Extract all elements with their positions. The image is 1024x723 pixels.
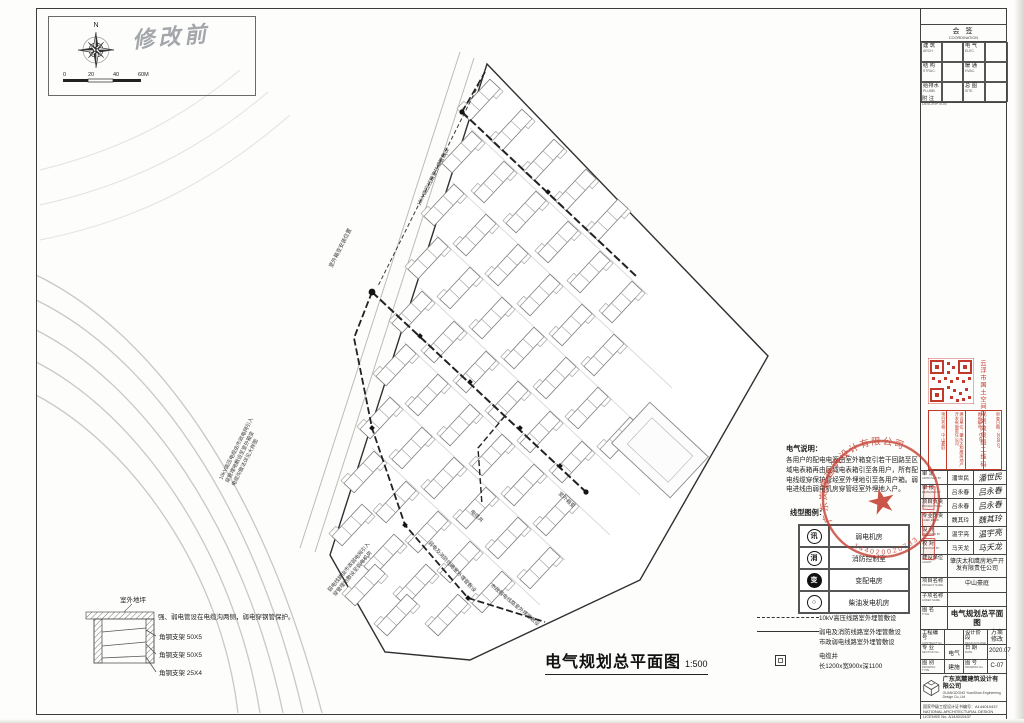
drawing-date: 2020.07 [988, 645, 1012, 659]
trench-detail: 室外地坪 强、弱电管设在电缆沟两侧，弱电穿钢管保护。 角钢支架 50X5 角钢支… [76, 588, 336, 696]
scan-edge [1014, 0, 1024, 723]
electrical-notes: 电气说明： 各用户的配电电源由室外箱变引若干回路至区域电表箱再由区域电表箱引至各… [786, 444, 918, 495]
lv-line-symbol [757, 628, 819, 632]
legend-label: 变配电房 [829, 569, 909, 591]
svg-text:40: 40 [113, 72, 119, 78]
drawing-sheet: 室外箱变安装位置 10kV高压电缆由市政电网引入 穿管埋地敷设至室外箱变 电缆沟… [0, 0, 1024, 723]
company-logo [923, 677, 940, 699]
project-name: 中山豪庭 [948, 578, 1006, 592]
legend-label: 柴油发电机房 [829, 591, 909, 613]
ground-label: 室外地坪 [120, 595, 147, 604]
registration-chop [922, 486, 935, 511]
svg-text:角钢支架 50X5: 角钢支架 50X5 [159, 632, 202, 641]
design-company: 广东岚麓建筑设计有限公司 GUANGDONG YuanShan Engineer… [920, 674, 1007, 702]
svg-text:角钢支架 25X4: 角钢支架 25X4 [159, 668, 202, 677]
substation-icon: 变 [807, 573, 822, 588]
registration-chop [923, 538, 936, 560]
legend-title: 线型图例： [790, 508, 826, 518]
scale-bar: 0 20 40 60M [63, 72, 149, 82]
fire-control-icon: 消 [807, 551, 822, 566]
cable-well-symbol [757, 652, 819, 666]
compass-petals [78, 32, 114, 68]
hv-line-symbol [757, 614, 819, 618]
registration-chop [922, 512, 935, 536]
description-label: 附 注DESCRIPTION [922, 94, 947, 106]
client-name: 肇庆太和鹰房地产开发有限责任公司 [948, 555, 1006, 577]
drawing-title: 电气规划总平面图 1:500 [545, 648, 708, 675]
sheet-title: 电气规划总平面图 [948, 607, 1006, 629]
drawing-number: C-07 [988, 660, 1006, 673]
north-label: N [93, 22, 98, 29]
legend-label: 弱电机房 [829, 525, 909, 547]
review-qr-block: 云浮市国土空间规划效果图二维码 项目名称：中山豪庭 建设单位：肇庆太和鹰房地产开… [928, 358, 1004, 470]
svg-text:60M: 60M [138, 72, 149, 78]
svg-text:20: 20 [88, 72, 94, 78]
line-type-legend: 10kV高压线路室外埋管敷设 弱电及消防线路室外埋管敷设 市政弱电线路室外埋管敷… [757, 614, 922, 676]
svg-text:角钢支架 50X5: 角钢支架 50X5 [159, 650, 202, 659]
room-legend-table: 讯 弱电机房 消 消防控制室 变 变配电房 ○ 柴油发电机房 [798, 524, 910, 614]
generator-room-icon: ○ [807, 595, 822, 610]
svg-text:0: 0 [63, 72, 66, 78]
telecom-room-icon: 讯 [807, 529, 822, 544]
legend-label: 消防控制室 [829, 547, 909, 569]
scan-edge [0, 719, 1024, 723]
qr-code [928, 358, 974, 404]
coordination-table: 会 签COORDINATION 建 筑ARCH. 电 气ELEC. 结 构STR… [920, 24, 1007, 103]
trench-section [94, 619, 156, 672]
notes-title: 电气说明： [786, 444, 918, 454]
trench-note: 强、弱电管设在电缆沟两侧，弱电穿钢管保护。 [158, 612, 295, 621]
notes-body: 各用户的配电电源由室外箱变引若干回路至区域电表箱再由区域电表箱引至各用户，所有配… [786, 456, 918, 494]
review-stamp-table: 项目名称：中山豪庭 建设单位：肇庆太和鹰房地产开发有限责任公司 图纸编号：C-0… [928, 410, 1002, 470]
